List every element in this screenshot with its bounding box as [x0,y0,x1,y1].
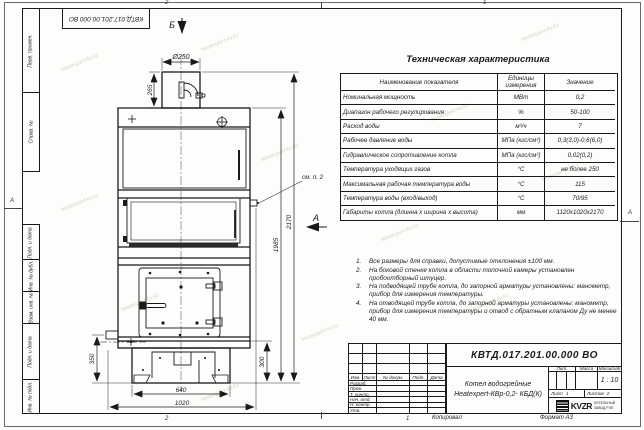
dim-left-height: 350 [89,353,96,364]
spec-cell: мм [498,206,545,219]
tb-doc-number: КВТД.017.201.00.000 ВО [446,344,622,367]
spec-header-value: Значение [545,74,615,91]
zone-letter-left: А [10,198,14,204]
dim-body-height: 1985 [273,237,280,252]
tb-product-line2: Heatexpert-КВр-0,2- КБД(К) [454,390,542,399]
zone-letter-right: А [628,210,632,216]
frame-column-podp-data-2: Подп. и дата [22,323,40,381]
spec-cell: Диапазон рабочего регулирования [341,105,498,119]
upper-door [123,129,246,188]
frame-column-label: Инв. № подл. [28,381,34,412]
zone-number-top-left: 2 [165,0,168,6]
spec-cell: 0,02(0,2) [545,149,615,163]
spec-cell: Расход воды [341,120,498,134]
copied-label: Копировал [432,415,462,421]
spec-cell: МПа (кгс/см²) [498,134,545,148]
spec-header-units: Единицы измерения [498,74,545,91]
view-label-top: Б [169,20,175,30]
frame-column-label: Перв. примен. [28,34,34,67]
frame-column-sprav-no: Справ. № [22,92,40,172]
spec-cell: 115 [545,177,615,191]
tb-lit-cell [557,372,566,390]
zone-number-bottom-left: 2 [165,416,168,422]
spec-cell: 7 [545,120,615,134]
note-text: Все размеры для справки, допустимые откл… [369,258,618,266]
spec-cell: МПа (кгс/см²) [498,149,545,163]
boiler-body [118,108,250,348]
dim-chimney-height: 265 [147,84,154,96]
spec-table: Наименование показателя Единицы измерени… [340,73,618,221]
spec-cell: Рабочее давление воды [341,134,498,148]
title-block: Изм. Лист № докум. Подп. Дата Разраб. Пр… [348,343,622,414]
tb-col-podp: Подп. [410,374,428,381]
tb-massa-cell [576,372,598,390]
note-item: 1. Все размеры для справки, допустимые о… [356,258,618,266]
boiler-front-view-drawing: Ø250 265 350 300 640 1020 1985 2170 Б А … [40,10,332,410]
extension-lines [92,58,300,410]
spec-cell: Температура уходящих газов [341,163,498,177]
see-note-ref: см. п. 2 [302,174,324,181]
tb-col-data: Дата [428,374,446,381]
leader-dot [257,202,259,204]
tb-lit-cell [548,372,557,390]
frame-column-label: Подп. и дата [28,227,34,258]
tb-lit-cell [567,372,576,390]
tb-sheet-label: Лист [551,391,563,396]
company-line2: ЗАВОД РЭП [594,406,615,410]
note-number: 4. [356,300,369,323]
dim-right-height: 300 [259,356,266,367]
spec-cell: Гидравлическое сопротивление котла [341,149,498,163]
spec-cell: °С [498,192,545,206]
note-text: На боковой стенке котла в области топочн… [369,267,618,283]
tb-sheets-label: Листов [587,391,604,396]
spec-cell: °С [498,177,545,191]
note-leader [259,181,302,203]
frame-column-label: Справ. № [28,121,34,144]
door-handle [140,302,146,309]
spec-cell: Габариты котла (длинна х ширина х высота… [341,206,498,219]
zone-tick-right [620,221,639,222]
spec-table-title: Техническая характеристика [340,54,616,65]
frame-column-vzam-inv: Взам. инв. № [22,291,40,325]
spec-cell: Максимальная рабочая температура воды [341,177,498,191]
frame-column-podp-data-1: Подп. и дата [22,224,40,261]
note-number: 3. [356,283,369,299]
lifting-marks [128,115,228,128]
tb-row-utv: Утв. [349,408,377,413]
spec-cell: Номинальная мощность [341,91,498,105]
kvzr-logo-word: KVZR [571,401,592,411]
tb-sheets-value: 2 [607,391,610,396]
spec-cell: °С [498,163,545,177]
spec-cell: 1120х1020х2170 [545,206,615,219]
frame-column-label: Инв. № дубл. [28,261,34,292]
sampling-fitting [250,200,257,206]
spec-cell: 0,2 [545,91,615,105]
tb-sheet-value: 1 [566,391,569,396]
note-item: 2. На боковой стенке котла в области топ… [356,267,618,283]
spec-cell: Температура воды (вход/выход) [341,192,498,206]
note-item: 3. На подводящей трубе котла, до запорно… [356,283,618,299]
tb-product-name: Котел водогрейные Heatexpert-КВр-0,2- КБ… [446,366,549,413]
note-number: 2. [356,267,369,283]
tb-company: KVZR КОТЕЛЬНЫЙ ЗАВОД РЭП [548,398,622,413]
frame-column-inv-dubl: Инв. № дубл. [22,259,40,293]
tb-sheets: Листов 2 [585,390,621,398]
spec-cell: 50-100 [545,105,615,119]
tb-sheet: Лист 1 [548,390,585,398]
frame-column-label: Подп. и дата [28,336,34,367]
note-item: 4. На отводящей трубе котла, до запорной… [356,300,618,323]
spec-cell: не более 250 [545,163,615,177]
note-text: На отводящей трубе котла, до запорной ар… [369,300,618,323]
spec-cell: 70/95 [545,192,615,206]
middle-door [123,198,240,247]
note-number: 1. [356,258,369,266]
spec-cell: 0,3(3,0)-0,6(6,0) [545,134,615,148]
spec-cell: МВт [498,91,545,105]
company-line1: КОТЕЛЬНЫЙ [594,401,615,405]
view-label-side: А [312,213,319,223]
company-name: КОТЕЛЬНЫЙ ЗАВОД РЭП [594,401,615,409]
format-label: Формат А3 [540,415,573,421]
dim-total-height: 2170 [286,214,293,230]
note-text: На подводящей трубе котла, до запорной а… [369,283,618,299]
zone-tick-left [4,208,22,209]
dim-total-width: 1020 [175,400,190,407]
tb-col-docum: № докум. [377,374,410,381]
spec-cell: м³/ч [498,120,545,134]
frame-column-label: Взам. инв. № [28,293,34,324]
zone-number-bottom-right: 1 [406,416,409,422]
zone-tick-bottom [321,412,322,419]
zone-tick-top [321,2,322,8]
chimney [162,72,205,108]
lower-door [139,268,222,337]
notes-list: 1. Все размеры для справки, допустимые о… [356,258,618,325]
frame-column-perv-primen: Перв. примен. [22,8,40,94]
zone-number-top-right: 1 [483,0,486,6]
spec-header-name: Наименование показателя [341,74,498,91]
dim-base-width: 640 [176,387,187,394]
spec-cell: % [498,105,545,119]
tb-scale-value: 1 : 10 [598,372,621,390]
frame-column-inv-podl: Инв. № подл. [22,379,40,414]
dim-chimney-diameter: Ø250 [171,54,189,61]
tb-product-line1: Котел водогрейные [465,380,532,389]
kvzr-logo-icon [556,400,569,412]
